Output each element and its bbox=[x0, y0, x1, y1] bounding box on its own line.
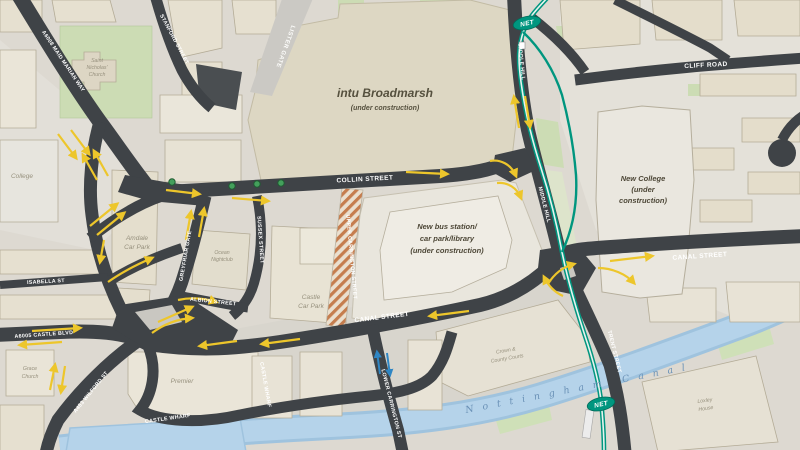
label-amdale-2: Car Park bbox=[124, 244, 150, 251]
label-ocean-1: Ocean bbox=[214, 250, 229, 256]
label-broadmarsh: intu Broadmarsh bbox=[337, 86, 433, 100]
terrace-row bbox=[748, 172, 800, 194]
college-building bbox=[0, 140, 58, 222]
terrace-row bbox=[690, 148, 734, 170]
label-college: College bbox=[11, 173, 33, 180]
tree-icon bbox=[169, 179, 175, 185]
building-block bbox=[52, 0, 116, 22]
label-st-nicholas-2: Nicholas' bbox=[87, 65, 109, 71]
label-st-nicholas-1: Saint bbox=[91, 58, 103, 64]
building-block bbox=[734, 0, 800, 36]
label-new-college-3: construction) bbox=[619, 196, 667, 205]
map-screenshot: NET NET A6008 MAID MARIAN WAY STANFORD S… bbox=[0, 0, 800, 450]
road-circle-east bbox=[768, 139, 796, 167]
building-block bbox=[0, 405, 44, 450]
building-block bbox=[0, 50, 36, 128]
label-bus-station-2: car park/library bbox=[420, 234, 475, 243]
label-new-college-1: New College bbox=[621, 174, 666, 183]
building-block bbox=[0, 250, 104, 274]
label-grace-1: Grace bbox=[23, 366, 37, 372]
building-block bbox=[726, 282, 800, 322]
label-castle-cp-1: Castle bbox=[302, 294, 321, 301]
label-bus-station-3: (under construction) bbox=[410, 246, 484, 255]
label-st-nicholas-3: Church bbox=[89, 72, 106, 78]
label-ocean-2: Nightclub bbox=[211, 257, 233, 263]
label-bus-station-1: New bus station/ bbox=[417, 222, 478, 231]
grace-church-building bbox=[6, 350, 54, 396]
tree-icon bbox=[229, 183, 235, 189]
building-block bbox=[165, 140, 241, 182]
terrace-row bbox=[700, 74, 796, 96]
label-amdale-1: Amdale bbox=[125, 235, 148, 242]
terrace-row bbox=[700, 200, 752, 222]
building-block bbox=[232, 0, 276, 34]
building-block bbox=[0, 295, 118, 319]
map-canvas: NET NET A6008 MAID MARIAN WAY STANFORD S… bbox=[0, 0, 800, 450]
label-premier: Premier bbox=[171, 378, 195, 385]
label-castle-cp-2: Car Park bbox=[298, 303, 324, 310]
label-new-college-2: (under bbox=[631, 185, 655, 194]
tree-icon bbox=[254, 181, 260, 187]
label-broadmarsh-status: (under construction) bbox=[351, 105, 420, 112]
label-grace-2: Church bbox=[22, 374, 39, 380]
tree-icon bbox=[278, 180, 284, 186]
